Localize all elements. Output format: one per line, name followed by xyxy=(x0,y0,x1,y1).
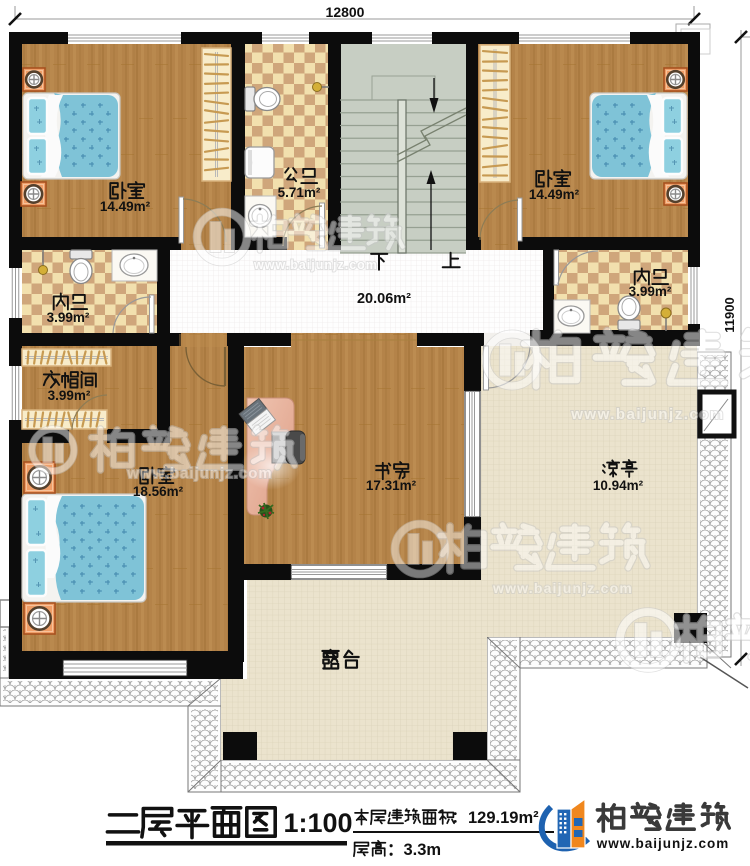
svg-text:：: ： xyxy=(451,809,466,826)
svg-text:1:100: 1:100 xyxy=(283,808,352,838)
svg-text:：3.3m: ：3.3m xyxy=(387,841,441,859)
svg-text:17.31m²: 17.31m² xyxy=(366,478,417,493)
svg-text:14.49m²: 14.49m² xyxy=(100,199,151,214)
svg-text:www.baijunjz.com: www.baijunjz.com xyxy=(126,465,272,482)
svg-text:3.99m²: 3.99m² xyxy=(629,284,672,299)
svg-text:www.baijunjz.com: www.baijunjz.com xyxy=(570,406,724,423)
svg-text:14.49m²: 14.49m² xyxy=(529,187,580,202)
svg-text:3.99m²: 3.99m² xyxy=(47,310,90,325)
svg-text:129.19m²: 129.19m² xyxy=(468,809,539,827)
svg-text:www.baijunjz.com: www.baijunjz.com xyxy=(253,258,378,272)
svg-text:3.99m²: 3.99m² xyxy=(48,388,91,403)
svg-text:11900: 11900 xyxy=(722,297,737,332)
svg-text:5.71m²: 5.71m² xyxy=(278,185,321,200)
svg-text:20.06m²: 20.06m² xyxy=(357,291,411,307)
svg-text:12800: 12800 xyxy=(326,4,365,20)
svg-text:18.56m²: 18.56m² xyxy=(133,484,184,499)
svg-text:www.baijunjz.com: www.baijunjz.com xyxy=(596,836,730,851)
svg-text:www.baijunjz.com: www.baijunjz.com xyxy=(492,580,633,596)
svg-text:10.94m²: 10.94m² xyxy=(593,478,644,493)
